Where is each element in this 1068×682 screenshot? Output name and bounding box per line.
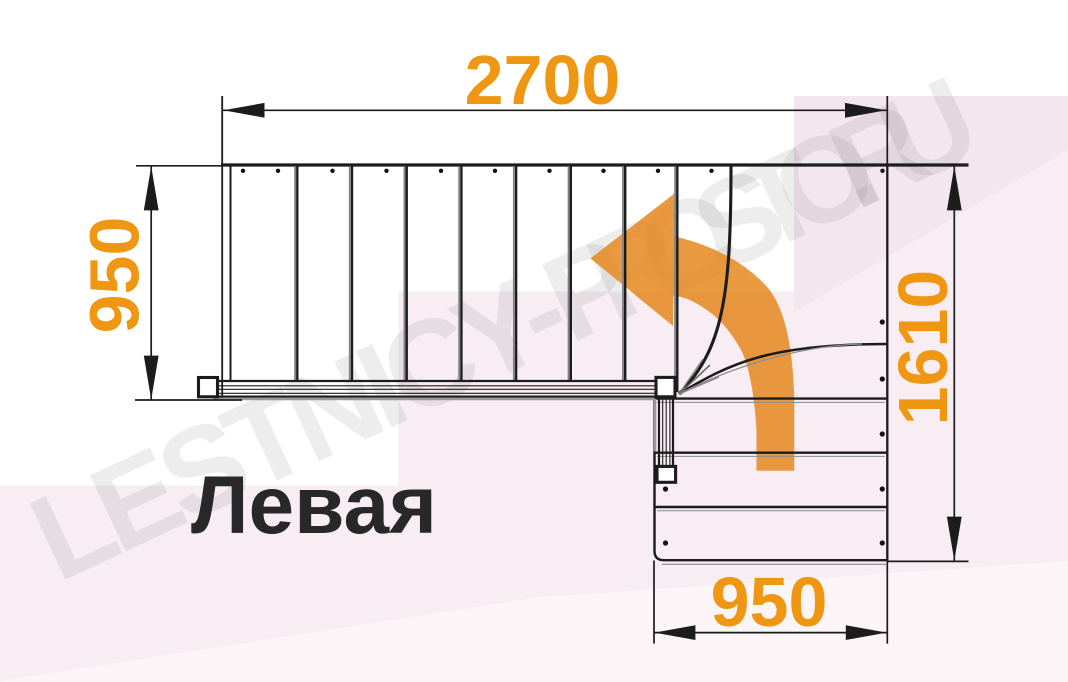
svg-text:Левая: Левая <box>191 460 437 551</box>
svg-text:1610: 1610 <box>884 270 962 426</box>
svg-text:950: 950 <box>711 563 828 641</box>
svg-text:950: 950 <box>75 217 153 334</box>
svg-text:2700: 2700 <box>465 41 621 119</box>
